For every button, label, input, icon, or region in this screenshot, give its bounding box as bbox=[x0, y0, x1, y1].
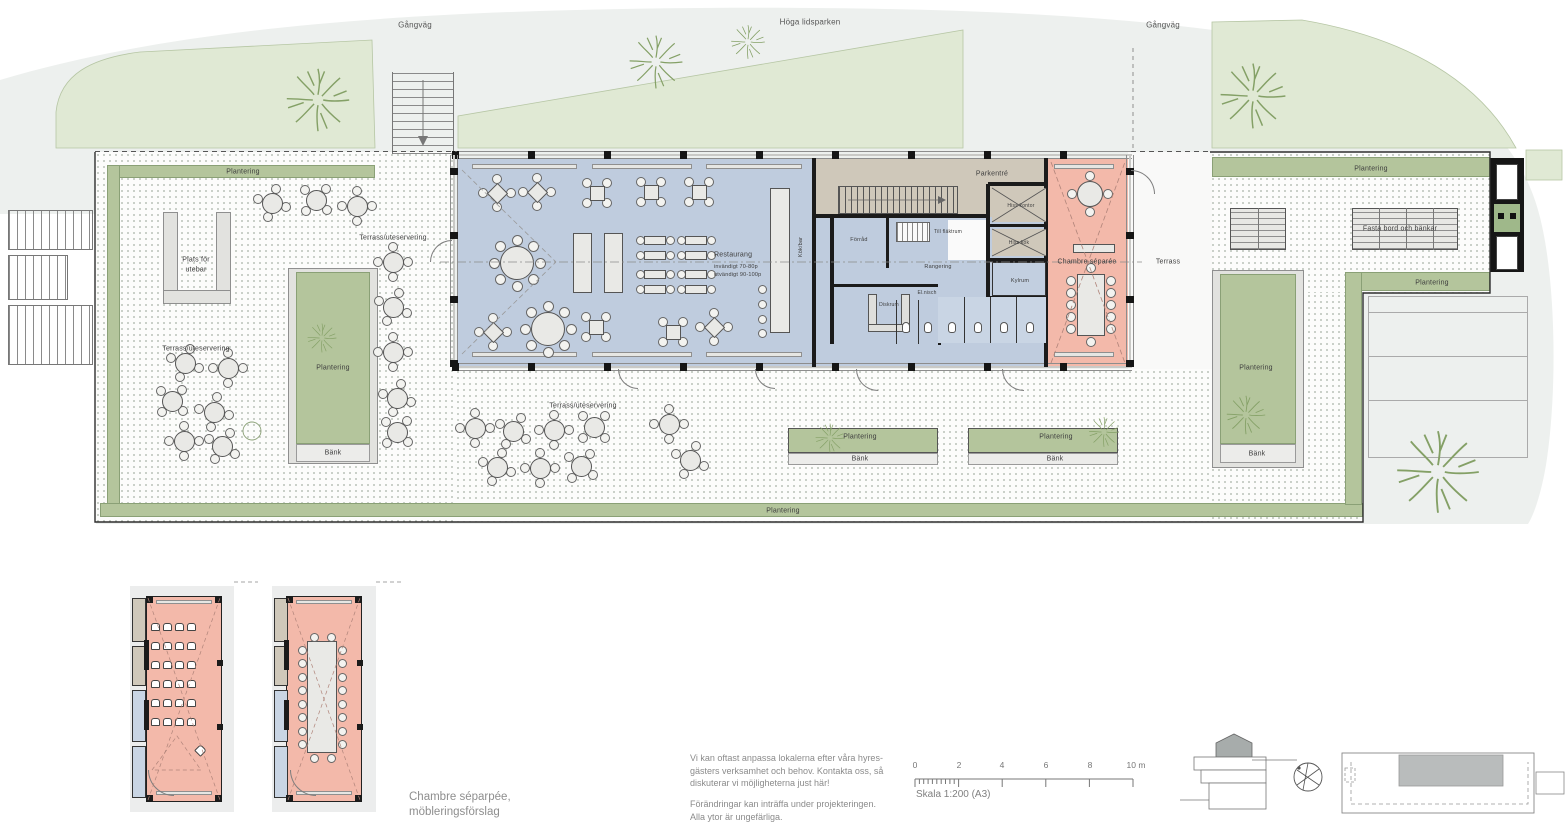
label-terrass: Terrass bbox=[1156, 259, 1180, 266]
chair bbox=[455, 423, 465, 433]
label-bank-left-box: Bänk bbox=[325, 450, 342, 457]
chair bbox=[175, 642, 184, 650]
chair bbox=[1066, 300, 1076, 310]
table bbox=[692, 185, 707, 200]
label-hiss-kontor: Hiss kontor bbox=[1007, 203, 1034, 209]
table bbox=[503, 421, 524, 442]
chair bbox=[1085, 171, 1095, 181]
chair bbox=[566, 324, 577, 335]
chair bbox=[520, 324, 531, 335]
chair bbox=[338, 646, 347, 655]
table bbox=[212, 436, 233, 457]
chair bbox=[338, 700, 347, 709]
label-plantering-top-left: Plantering bbox=[226, 169, 260, 176]
chair bbox=[338, 659, 347, 668]
chair bbox=[163, 661, 172, 669]
table bbox=[644, 236, 666, 245]
chair bbox=[238, 363, 248, 373]
chair bbox=[151, 642, 160, 650]
chair bbox=[1066, 312, 1076, 322]
chair bbox=[327, 754, 336, 763]
park-stair bbox=[392, 72, 454, 154]
chair bbox=[337, 201, 347, 211]
table bbox=[262, 193, 283, 214]
chair bbox=[758, 300, 767, 309]
chair bbox=[666, 270, 675, 279]
chair bbox=[175, 661, 184, 669]
chair bbox=[298, 659, 307, 668]
chair bbox=[373, 347, 383, 357]
table bbox=[685, 236, 707, 245]
chair bbox=[175, 699, 184, 707]
chair bbox=[543, 301, 554, 312]
label-utebar-1: Plats för bbox=[182, 257, 209, 264]
table bbox=[659, 414, 680, 435]
chair bbox=[367, 201, 377, 211]
chair bbox=[485, 423, 495, 433]
planting-strip-right-vert bbox=[1345, 272, 1362, 505]
table bbox=[590, 186, 605, 201]
table bbox=[530, 458, 551, 479]
scale-tick-8: 8 bbox=[1088, 760, 1093, 770]
label-parkentre: Parkentré bbox=[976, 171, 1008, 178]
chair bbox=[298, 686, 307, 695]
table bbox=[584, 417, 605, 438]
chair bbox=[327, 633, 336, 642]
chair bbox=[1106, 300, 1116, 310]
chair bbox=[179, 451, 189, 461]
label-plantering-right-mid: Plantering bbox=[1415, 280, 1449, 287]
note1-line3: diskuterar vi möjligheterna just här! bbox=[690, 777, 883, 790]
chair bbox=[1106, 288, 1116, 298]
chair bbox=[310, 633, 319, 642]
label-gangvag-right: Gångväg bbox=[1146, 21, 1180, 30]
table bbox=[487, 457, 508, 478]
chair bbox=[212, 392, 222, 402]
chair bbox=[352, 186, 362, 196]
table bbox=[1077, 181, 1103, 207]
detail-caption: Chambre séparpée, möbleringsförslag bbox=[409, 790, 511, 820]
label-forrad: Förråd bbox=[850, 237, 867, 243]
table bbox=[162, 391, 183, 412]
chair bbox=[1067, 189, 1077, 199]
building-north-wall bbox=[452, 151, 1132, 159]
chair bbox=[187, 680, 196, 688]
wc-row bbox=[938, 297, 1046, 343]
chair bbox=[163, 623, 172, 631]
label-park-name: Höga lidsparken bbox=[780, 18, 841, 27]
planter-left-green bbox=[296, 272, 370, 444]
label-terrass-uteservering-1: Terrass/uteservering bbox=[359, 235, 426, 242]
table bbox=[644, 185, 659, 200]
chair bbox=[338, 673, 347, 682]
chair bbox=[1085, 207, 1095, 217]
table bbox=[685, 285, 707, 294]
chair bbox=[163, 718, 172, 726]
label-hiss-kok: Hiss kök bbox=[1009, 240, 1030, 246]
chair bbox=[470, 438, 480, 448]
label-fasta-bord: Fasta bord och bänkar bbox=[1363, 226, 1437, 233]
footer-note-1: Vi kan oftast anpassa lokalerna efter vå… bbox=[690, 752, 883, 790]
note1-line1: Vi kan oftast anpassa lokalerna efter vå… bbox=[690, 752, 883, 765]
chair bbox=[403, 347, 413, 357]
chair bbox=[1066, 288, 1076, 298]
table bbox=[500, 246, 534, 280]
label-plantering-south-1: Plantering bbox=[843, 434, 877, 441]
chair bbox=[224, 410, 234, 420]
chair bbox=[298, 713, 307, 722]
scale-tick-10: 10 m bbox=[1127, 760, 1146, 770]
planter-right-green bbox=[1220, 274, 1296, 444]
chair bbox=[388, 332, 398, 342]
scale-tick-6: 6 bbox=[1044, 760, 1049, 770]
chair bbox=[338, 727, 347, 736]
label-plantering-right-box: Plantering bbox=[1239, 365, 1273, 372]
chair bbox=[187, 642, 196, 650]
chair bbox=[163, 680, 172, 688]
table bbox=[175, 353, 196, 374]
chair bbox=[535, 448, 545, 458]
chair bbox=[559, 340, 570, 351]
planting-strip-west bbox=[107, 165, 120, 510]
table bbox=[666, 325, 681, 340]
chair bbox=[298, 646, 307, 655]
table bbox=[347, 196, 368, 217]
chair bbox=[707, 285, 716, 294]
label-gangvag-left: Gångväg bbox=[398, 21, 432, 30]
scale-tick-4: 4 bbox=[1000, 760, 1005, 770]
label-restaurang: Restaurang bbox=[714, 252, 752, 259]
label-plantering-south-2: Plantering bbox=[1039, 434, 1073, 441]
chair bbox=[520, 463, 530, 473]
footer-note-2: Förändringar kan inträffa under projekte… bbox=[690, 798, 876, 823]
chair bbox=[223, 378, 233, 388]
table bbox=[383, 252, 404, 273]
chair bbox=[666, 236, 675, 245]
buffet-counter bbox=[604, 233, 623, 293]
chair bbox=[549, 410, 559, 420]
chair bbox=[151, 699, 160, 707]
floor-plan-canvas: Gångväg Höga lidsparken Gångväg Planteri… bbox=[0, 0, 1565, 823]
chair bbox=[151, 623, 160, 631]
chair bbox=[664, 404, 674, 414]
chair bbox=[1066, 324, 1076, 334]
chair bbox=[175, 372, 185, 382]
label-capacity-2: utvändigt 90-100p bbox=[714, 272, 761, 278]
label-utebar-2: utebar bbox=[185, 267, 206, 274]
table bbox=[644, 251, 666, 260]
chair bbox=[666, 285, 675, 294]
chair bbox=[164, 436, 174, 446]
chair bbox=[187, 718, 196, 726]
chair bbox=[373, 257, 383, 267]
table bbox=[306, 190, 327, 211]
planter-south-2-bench bbox=[968, 453, 1118, 465]
entrance-stair bbox=[838, 186, 958, 214]
chair bbox=[758, 315, 767, 324]
sideboard bbox=[1073, 244, 1115, 253]
chair bbox=[298, 673, 307, 682]
label-plantering-south-strip: Plantering bbox=[766, 508, 800, 515]
note1-line2: gästers verksamhet och behov. Kontakta o… bbox=[690, 765, 883, 778]
chair bbox=[151, 661, 160, 669]
chair bbox=[194, 436, 204, 446]
chair bbox=[388, 362, 398, 372]
chair bbox=[1103, 189, 1113, 199]
chair bbox=[528, 274, 539, 285]
table bbox=[644, 285, 666, 294]
table bbox=[531, 312, 565, 346]
chair bbox=[1106, 276, 1116, 286]
label-terrass-uteservering-3: Terrass/uteservering bbox=[549, 403, 616, 410]
chair bbox=[338, 686, 347, 695]
scale-tick-2: 2 bbox=[957, 760, 962, 770]
label-capacity-1: invändigt 70-80p bbox=[714, 264, 758, 270]
table bbox=[383, 297, 404, 318]
chair bbox=[403, 257, 413, 267]
chair bbox=[388, 242, 398, 252]
label-bank-south-2: Bänk bbox=[1047, 456, 1064, 463]
chair bbox=[535, 258, 546, 269]
label-plantering-right-top: Plantering bbox=[1354, 166, 1388, 173]
chair bbox=[338, 713, 347, 722]
scale-caption: Skala 1:200 (A3) bbox=[916, 789, 991, 802]
note2-line1: Förändringar kan inträffa under projekte… bbox=[690, 798, 876, 811]
chair bbox=[175, 680, 184, 688]
chair bbox=[512, 281, 523, 292]
chair bbox=[758, 329, 767, 338]
chair bbox=[298, 740, 307, 749]
label-till-flaktrum: Till fläktrum bbox=[934, 229, 962, 235]
chair bbox=[179, 421, 189, 431]
chair bbox=[1066, 276, 1076, 286]
planting-strip-south bbox=[100, 503, 1363, 517]
label-chambre-separee: Chambre séparée bbox=[1057, 259, 1116, 266]
chair bbox=[163, 699, 172, 707]
external-stair-2 bbox=[8, 255, 68, 300]
table bbox=[465, 418, 486, 439]
fan-room-stair bbox=[896, 222, 930, 242]
bar-counter bbox=[770, 188, 790, 333]
note2-line2: Alla ytor är ungefärliga. bbox=[690, 811, 876, 823]
table bbox=[204, 402, 225, 423]
table bbox=[544, 420, 565, 441]
chair bbox=[679, 419, 689, 429]
chair bbox=[489, 258, 500, 269]
ramp-area bbox=[1368, 296, 1528, 458]
table bbox=[387, 388, 408, 409]
table bbox=[589, 320, 604, 335]
planter-south-2-green bbox=[968, 428, 1118, 453]
chair bbox=[707, 236, 716, 245]
chair bbox=[1106, 312, 1116, 322]
chair bbox=[543, 347, 554, 358]
table bbox=[174, 431, 195, 452]
table bbox=[571, 456, 592, 477]
chair bbox=[298, 700, 307, 709]
chair bbox=[470, 408, 480, 418]
chair bbox=[534, 425, 544, 435]
table bbox=[685, 270, 707, 279]
label-diskrum: Diskrum bbox=[879, 302, 899, 308]
chair bbox=[649, 419, 659, 429]
chair bbox=[151, 680, 160, 688]
buffet-counter bbox=[573, 233, 592, 293]
table bbox=[307, 641, 337, 753]
table bbox=[644, 270, 666, 279]
chair bbox=[664, 434, 674, 444]
chair bbox=[175, 718, 184, 726]
chair bbox=[187, 661, 196, 669]
chair bbox=[298, 727, 307, 736]
chair bbox=[352, 216, 362, 226]
label-kylrum: Kylrum bbox=[1011, 278, 1029, 284]
planting-strip-right-top bbox=[1212, 157, 1490, 177]
chair bbox=[187, 699, 196, 707]
chair bbox=[1086, 337, 1096, 347]
chair bbox=[338, 740, 347, 749]
chair bbox=[388, 272, 398, 282]
chair bbox=[549, 440, 559, 450]
chair bbox=[208, 363, 218, 373]
label-bank-south-1: Bänk bbox=[852, 456, 869, 463]
chair bbox=[535, 478, 545, 488]
label-bank-right-box: Bänk bbox=[1249, 451, 1266, 458]
chair bbox=[175, 623, 184, 631]
external-stair-3 bbox=[8, 305, 93, 365]
scale-tick-0: 0 bbox=[913, 760, 918, 770]
planter-south-1-green bbox=[788, 428, 938, 453]
chair bbox=[151, 718, 160, 726]
label-kok-bar: Kök/bar bbox=[798, 237, 804, 257]
table bbox=[383, 342, 404, 363]
table bbox=[218, 358, 239, 379]
chair bbox=[550, 463, 560, 473]
label-terrass-uteservering-2: Terrass/uteservering bbox=[162, 346, 229, 353]
chair bbox=[187, 623, 196, 631]
table bbox=[387, 422, 408, 443]
chair bbox=[163, 642, 172, 650]
detail-caption-line2: möbleringsförslag bbox=[409, 805, 511, 820]
building-south-wall bbox=[452, 363, 1132, 371]
chair bbox=[1106, 324, 1116, 334]
label-plantering-left-box: Plantering bbox=[316, 365, 350, 372]
chair bbox=[666, 251, 675, 260]
label-rangering: Rangering bbox=[924, 264, 951, 270]
corridor bbox=[948, 220, 986, 260]
chair bbox=[758, 285, 767, 294]
chair bbox=[512, 235, 523, 246]
detail-caption-line1: Chambre séparpée, bbox=[409, 790, 511, 805]
chair bbox=[310, 754, 319, 763]
chair bbox=[564, 425, 574, 435]
label-el-nisch: El.nisch bbox=[917, 290, 936, 296]
table bbox=[1077, 274, 1105, 336]
table bbox=[680, 450, 701, 471]
external-stair-1 bbox=[8, 210, 93, 250]
chair bbox=[487, 476, 497, 486]
table bbox=[685, 251, 707, 260]
